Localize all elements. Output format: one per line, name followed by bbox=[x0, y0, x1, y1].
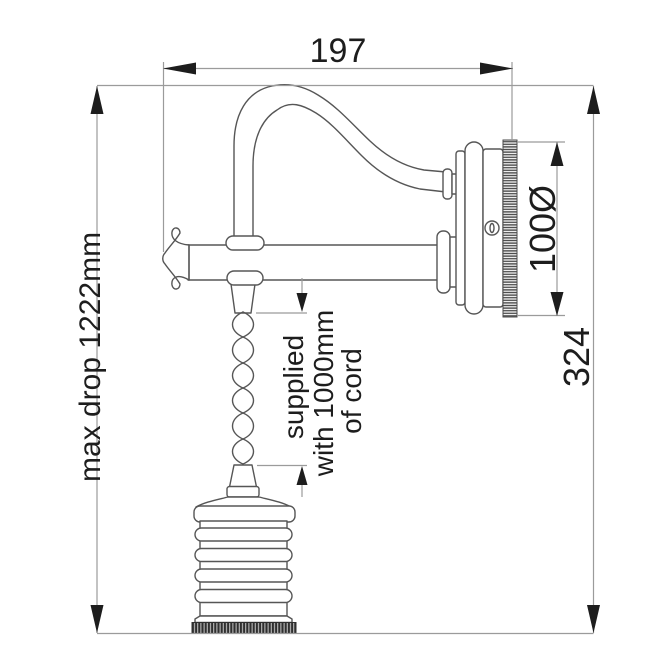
holder-rib bbox=[195, 590, 292, 603]
holder-knurled-base bbox=[192, 623, 296, 634]
horizontal-arm bbox=[188, 245, 446, 280]
holder-base-flare bbox=[195, 616, 292, 623]
plate-ring-inner bbox=[456, 151, 465, 305]
tube-collar-lower bbox=[227, 271, 263, 285]
diameter-dimension-label: 100Ø bbox=[522, 185, 563, 273]
cord-note-line2: with 1000mm bbox=[308, 310, 339, 478]
holder-rib bbox=[195, 528, 292, 541]
max-drop-dimension-label: max drop 1222mm bbox=[74, 232, 107, 482]
cord-note-line1: supplied bbox=[278, 335, 309, 439]
width-dimension-label: 197 bbox=[310, 32, 367, 70]
tube-collar-upper bbox=[226, 236, 264, 250]
arm-collar bbox=[437, 231, 450, 293]
cord-note-line3: of cord bbox=[336, 348, 367, 434]
plate-screw-slot bbox=[490, 224, 494, 233]
holder-cap bbox=[194, 506, 295, 522]
plate-knurled-ring bbox=[503, 140, 517, 317]
cord-grip-cone bbox=[230, 465, 257, 487]
neck-nipple bbox=[443, 169, 452, 199]
height-dimension-label: 324 bbox=[556, 327, 597, 387]
holder-rib bbox=[195, 569, 292, 582]
wall-light-dimension-drawing: 197 max drop 1222mm 324 100Ø supplied wi… bbox=[0, 0, 665, 665]
plate-ring-rounded bbox=[465, 142, 483, 314]
cord-grip-lip bbox=[227, 487, 259, 498]
holder-rib bbox=[195, 549, 292, 562]
cord-cone bbox=[231, 284, 255, 313]
technical-drawing-page: 197 max drop 1222mm 324 100Ø supplied wi… bbox=[0, 0, 665, 665]
